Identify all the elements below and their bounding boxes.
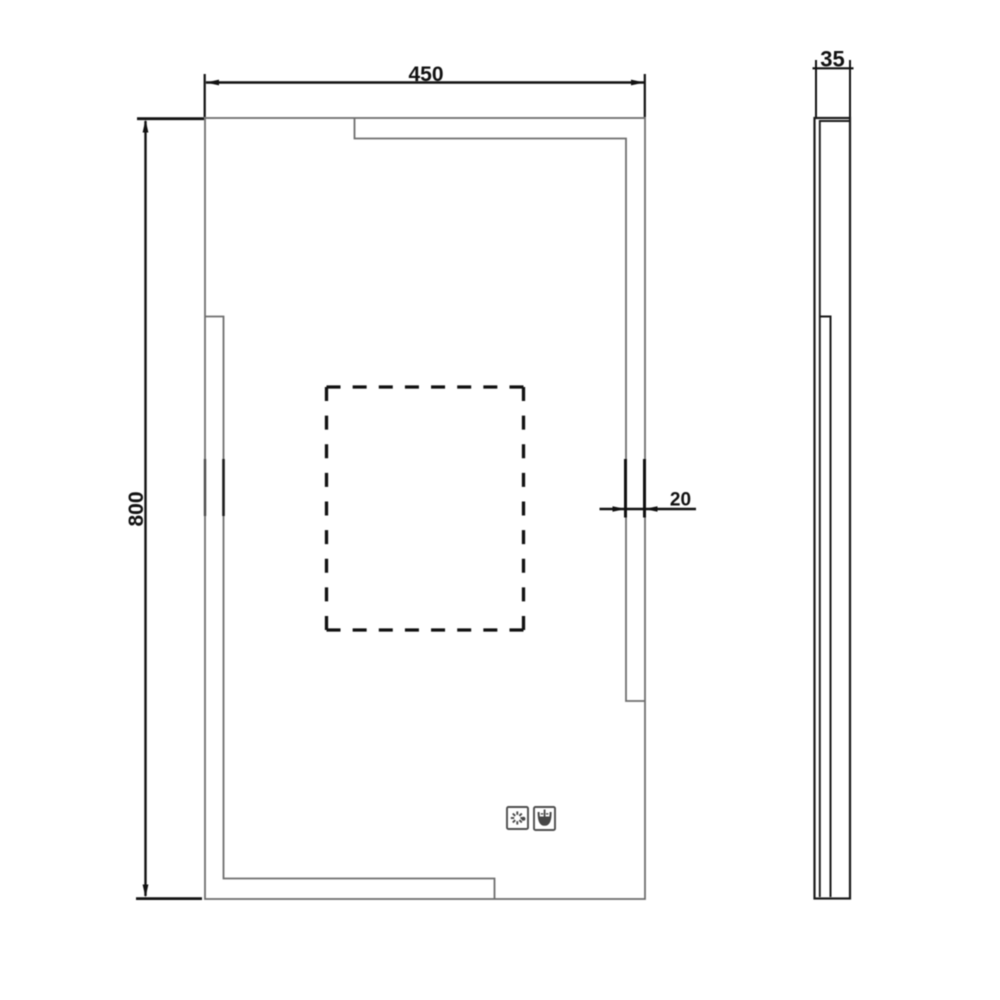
svg-text:20: 20: [670, 490, 691, 511]
svg-text:800: 800: [125, 491, 148, 526]
svg-text:35: 35: [820, 47, 844, 72]
svg-text:450: 450: [408, 63, 443, 86]
